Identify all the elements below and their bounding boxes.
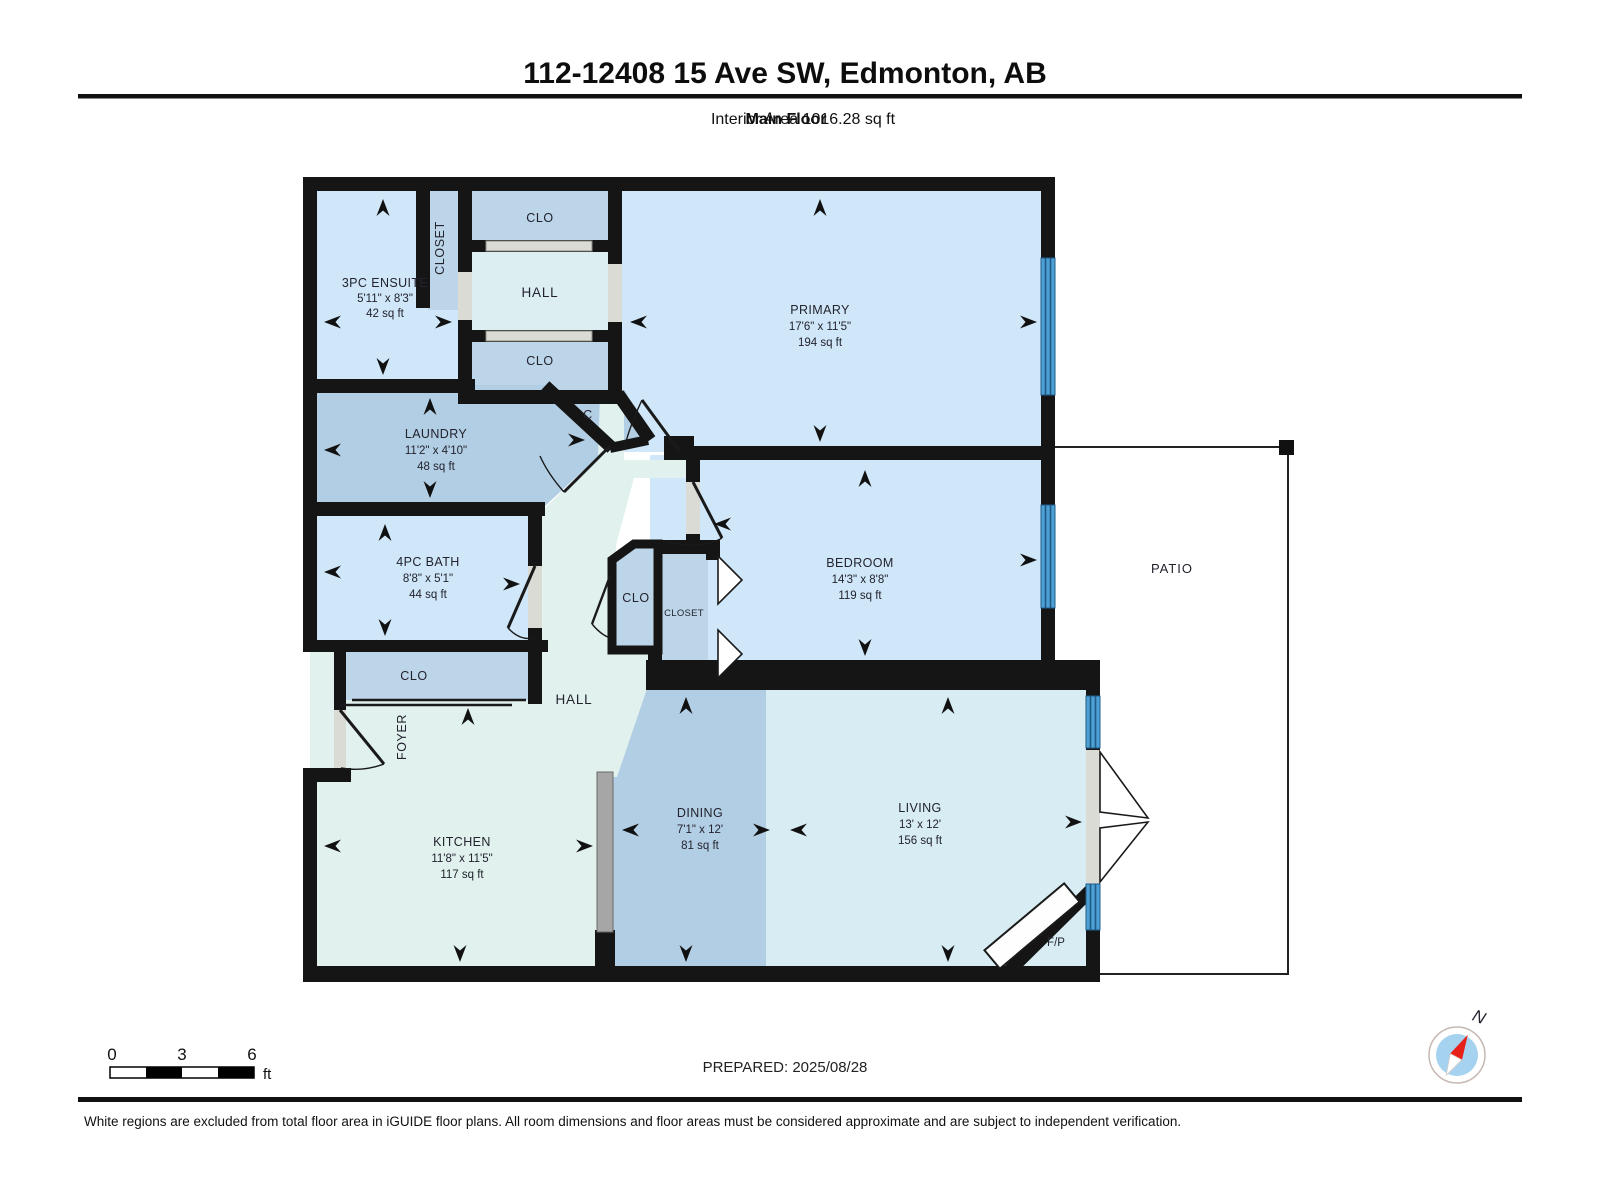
- bedroom-closet-label: CLOSET: [664, 608, 704, 619]
- patio-label: PATIO: [1151, 561, 1193, 576]
- kitchen-name: KITCHEN: [433, 835, 491, 849]
- ensuite-closet-label: CLOSET: [433, 221, 447, 275]
- patio-french-doors: [1100, 752, 1148, 882]
- kitchen-counter: [597, 772, 613, 932]
- bath-name: 4PC BATH: [396, 555, 459, 569]
- dining-dims: 7'1" x 12': [677, 824, 723, 836]
- window-primary: [1041, 258, 1055, 395]
- scale-tick-3: 3: [177, 1045, 186, 1064]
- bedroom-dims: 14'3" x 8'8": [832, 574, 889, 586]
- header: 112-12408 15 Ave SW, Edmonton, AB Main F…: [78, 57, 1522, 128]
- foyer-clo-label: CLO: [400, 669, 428, 683]
- window-living-lower: [1086, 884, 1100, 930]
- patio-corner-marker: [1279, 440, 1294, 455]
- compass-north-label: N: [1470, 1006, 1489, 1028]
- scale-tick-0: 0: [107, 1045, 116, 1064]
- laundry-name: LAUNDRY: [405, 427, 468, 441]
- scale-bar: 0 3 6 ft: [107, 1045, 272, 1083]
- ensuite-dims: 5'11" x 8'3": [357, 293, 413, 305]
- kitchen-area: 117 sq ft: [440, 869, 484, 881]
- clo-lower-label: CLO: [526, 354, 554, 368]
- kitchen-dims: 11'8" x 11'5": [431, 853, 492, 865]
- window-living-upper: [1086, 696, 1100, 748]
- disclaimer-text: White regions are excluded from total fl…: [84, 1114, 1181, 1129]
- window-bedroom: [1041, 505, 1055, 608]
- room-foyer-clo: [346, 652, 528, 700]
- living-name: LIVING: [898, 801, 941, 815]
- scale-tick-6: 6: [247, 1045, 256, 1064]
- primary-dims: 17'6" x 11'5": [789, 321, 851, 333]
- bedroom-area: 119 sq ft: [838, 590, 882, 602]
- header-divider: [78, 94, 1522, 99]
- ensuite-area: 42 sq ft: [366, 308, 405, 320]
- primary-name: PRIMARY: [790, 303, 850, 317]
- floor-plan-page: 112-12408 15 Ave SW, Edmonton, AB Main F…: [0, 0, 1600, 1200]
- living-area: 156 sq ft: [898, 835, 943, 847]
- floor-plan-canvas: 112-12408 15 Ave SW, Edmonton, AB Main F…: [0, 0, 1600, 1200]
- fireplace-label: F/P: [1047, 937, 1065, 949]
- footer-divider: [78, 1097, 1522, 1102]
- living-dims: 13' x 12': [899, 819, 941, 831]
- primary-area: 194 sq ft: [798, 337, 843, 349]
- dining-area: 81 sq ft: [681, 840, 720, 852]
- bedroom-name: BEDROOM: [826, 556, 893, 570]
- laundry-area: 48 sq ft: [417, 461, 456, 473]
- dining-name: DINING: [677, 806, 723, 820]
- bath-area: 44 sq ft: [409, 589, 448, 601]
- foyer-label: FOYER: [395, 714, 409, 760]
- bath-dims: 8'8" x 5'1": [403, 573, 453, 585]
- clo-mid-label: CLO: [622, 591, 650, 605]
- page-title: 112-12408 15 Ave SW, Edmonton, AB: [523, 57, 1047, 90]
- scale-unit: ft: [263, 1066, 272, 1083]
- interior-area-label: Interior Area 1016.28 sq ft: [711, 111, 896, 128]
- clo-upper-label: CLO: [526, 211, 554, 225]
- hall-upper-label: HALL: [522, 285, 559, 300]
- compass: N: [1429, 1006, 1489, 1083]
- laundry-dims: 11'2" x 4'10": [405, 445, 467, 457]
- footer: White regions are excluded from total fl…: [78, 1097, 1522, 1129]
- room-primary: [615, 184, 1047, 452]
- c-closet-label: C: [583, 408, 593, 422]
- ensuite-name: 3PC ENSUITE: [342, 276, 428, 290]
- hall-main-label: HALL: [556, 692, 593, 707]
- prepared-date: PREPARED: 2025/08/28: [703, 1059, 868, 1076]
